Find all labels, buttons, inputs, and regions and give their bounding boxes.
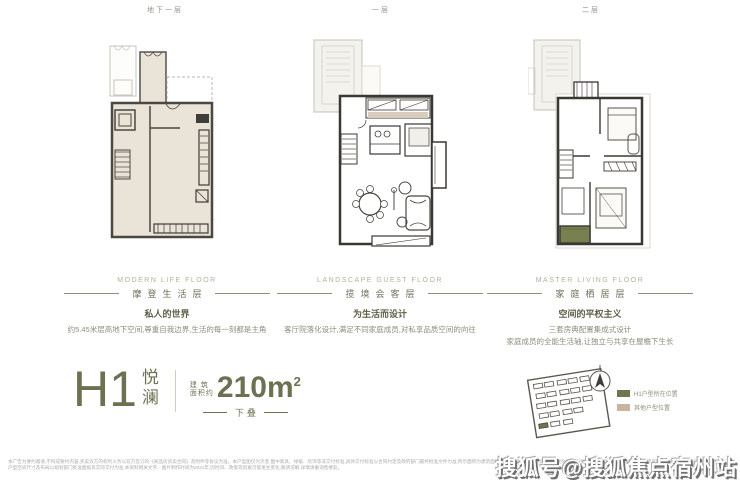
highlighted-unit-block bbox=[539, 423, 549, 429]
vertical-divider bbox=[175, 370, 176, 412]
floorplan-first-floor bbox=[310, 38, 455, 257]
legend-label: 其他户型位置 bbox=[634, 403, 670, 412]
area-value: 210m2 bbox=[217, 368, 301, 402]
floorplan-basement bbox=[104, 40, 219, 250]
floor-description-text: 约5.45米层高地下空间,尊重自我边界,生活的每一刻都是主角 bbox=[52, 325, 282, 335]
floor-subtitle: 空间的平权主义 bbox=[475, 307, 705, 320]
floor-chinese-title: 家庭栖居层 bbox=[549, 287, 630, 300]
stack-type-label: 下叠 bbox=[232, 406, 259, 419]
floor-description-text: 客厅院落化设计,满足不同家庭成员,对私享品质空间的向往 bbox=[265, 325, 495, 335]
unit-badge: H1 悦 澜 建 筑 面积约 210m2 下叠 bbox=[73, 366, 301, 419]
legend-swatch-beige bbox=[617, 404, 630, 411]
floor-label-first: 一层 bbox=[326, 5, 436, 15]
area-label: 建 筑 面积约 bbox=[190, 382, 214, 398]
floor-subtitle: 为生活而设计 bbox=[265, 307, 495, 320]
decorative-rule bbox=[203, 412, 227, 413]
floor-english-title: LANDSCAPE GUEST FLOOR bbox=[265, 277, 495, 284]
legend-swatch-green bbox=[617, 390, 630, 397]
unit-name-char: 悦 bbox=[142, 368, 159, 388]
floor-description-text: 三套房典配置集成式设计 bbox=[475, 325, 705, 335]
decorative-rule bbox=[487, 293, 542, 294]
compass-drawing bbox=[588, 364, 612, 394]
floorplan-basement-drawing bbox=[104, 40, 219, 245]
unit-code: H1 bbox=[73, 366, 137, 412]
decorative-rule bbox=[264, 412, 288, 413]
unit-area: 建 筑 面积约 210m2 下叠 bbox=[190, 368, 301, 419]
site-plan-legend: H1户型所在位置 其他户型位置 bbox=[617, 389, 678, 417]
sohu-watermark: 搜狐号@搜狐焦点宿州站 bbox=[496, 452, 737, 482]
unit-name: 悦 澜 bbox=[142, 368, 159, 408]
floor-label-second: 二层 bbox=[536, 5, 646, 15]
floor-english-title: MODERN LIFE FLOOR bbox=[52, 277, 282, 284]
flyer-canvas: 地下一层 一层 二层 bbox=[0, 0, 740, 485]
floor-chinese-title: 摩登生活层 bbox=[126, 287, 207, 300]
unit-name-char: 澜 bbox=[142, 388, 159, 408]
decorative-rule bbox=[638, 293, 693, 294]
floor-label-basement: 地下一层 bbox=[110, 5, 220, 15]
floorplan-second-floor-drawing bbox=[528, 38, 653, 252]
floor-chinese-title: 揽境会客层 bbox=[339, 287, 420, 300]
floor-description-text: 家庭成员的全能生活轴,让独立与共享在屋檐下生长 bbox=[475, 337, 705, 347]
legend-row: H1户型所在位置 bbox=[617, 389, 678, 398]
decorative-rule bbox=[64, 293, 119, 294]
floorplan-second-floor bbox=[528, 38, 653, 257]
legend-row: 其他户型位置 bbox=[617, 403, 678, 412]
floor-description-second: MASTER LIVING FLOOR 家庭栖居层 空间的平权主义 三套房典配置… bbox=[475, 277, 705, 347]
floor-description-basement: MODERN LIFE FLOOR 摩登生活层 私人的世界 约5.45米层高地下… bbox=[52, 277, 282, 335]
north-compass-icon bbox=[588, 364, 612, 399]
area-superscript: 2 bbox=[294, 374, 301, 389]
floor-description-first: LANDSCAPE GUEST FLOOR 揽境会客层 为生活而设计 客厅院落化… bbox=[265, 277, 495, 335]
floor-english-title: MASTER LIVING FLOOR bbox=[475, 277, 705, 284]
decorative-rule bbox=[215, 293, 270, 294]
floor-subtitle: 私人的世界 bbox=[52, 307, 282, 320]
decorative-rule bbox=[277, 293, 332, 294]
floorplan-first-floor-drawing bbox=[310, 38, 455, 252]
legend-label: H1户型所在位置 bbox=[634, 389, 678, 398]
